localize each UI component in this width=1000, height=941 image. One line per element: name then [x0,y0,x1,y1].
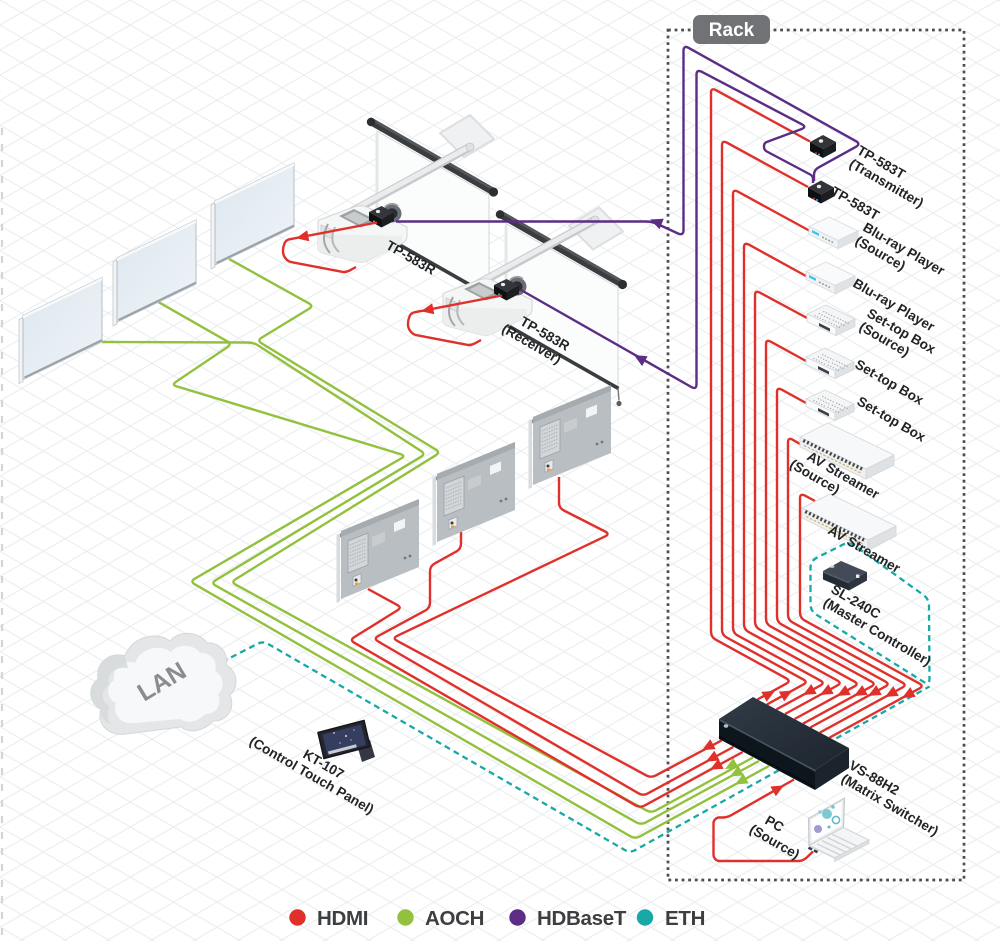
svg-text:ETH: ETH [665,907,705,930]
svg-text:AOCH: AOCH [425,907,484,930]
svg-text:HDMI: HDMI [317,907,368,930]
svg-text:Rack: Rack [709,20,755,41]
svg-text:HDBaseT: HDBaseT [537,907,627,930]
